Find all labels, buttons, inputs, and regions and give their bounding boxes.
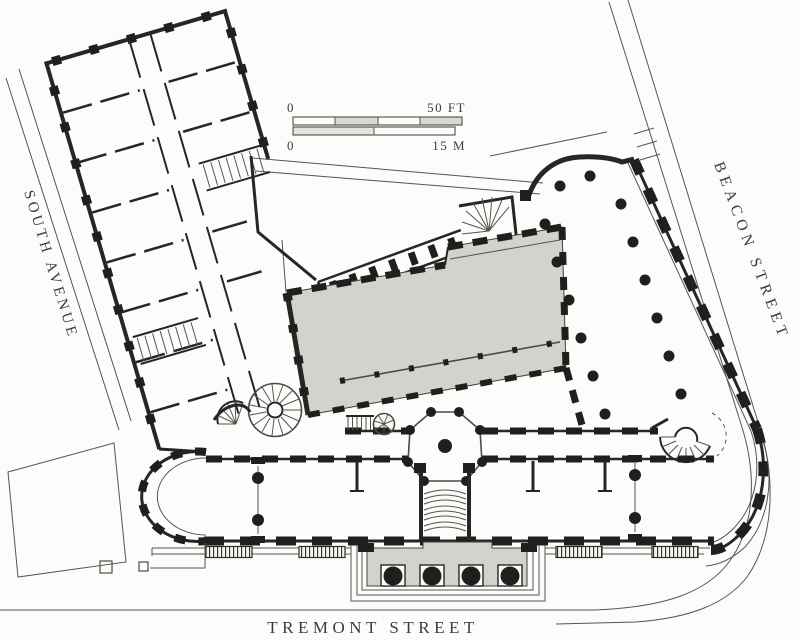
south-avenue-label: SOUTH AVENUE (20, 188, 81, 341)
rotunda-pier (403, 457, 413, 467)
grand-circular-stair (249, 384, 302, 437)
octagonal-rotunda (403, 407, 487, 486)
column-dot (552, 257, 563, 268)
stair-entry-wall (652, 419, 668, 428)
rotunda-center-column (438, 439, 452, 453)
column-dot (585, 171, 596, 182)
beacon-sidewalk-steps (634, 128, 660, 160)
wing-partitions (63, 62, 325, 413)
scale-cell (335, 117, 378, 125)
entrance-portico (351, 542, 545, 601)
scale-cell (293, 127, 374, 135)
vault-grating (652, 547, 698, 558)
column-dot (652, 313, 663, 324)
portico-column (384, 567, 403, 586)
left-wing (44, 9, 340, 450)
rotunda-pier (405, 425, 415, 435)
portico-column (501, 567, 520, 586)
stair-curved-wall (214, 405, 250, 420)
column-dot (600, 409, 611, 420)
column-dot (555, 181, 566, 192)
column-dot (252, 514, 264, 526)
vault-grating (206, 547, 252, 558)
rotunda-pier (426, 407, 436, 417)
wing-stair-lower (133, 318, 206, 364)
floor-plan-drawing: 0 50 FT 0 15 M SOUTH AVENUE BEACON STREE… (0, 0, 800, 640)
scale-cell (420, 117, 462, 125)
central-hall-shaded (287, 227, 566, 415)
column-dot (616, 199, 627, 210)
beacon-street-label: BEACON STREET (710, 159, 792, 342)
column-dot (540, 219, 551, 230)
bowed-west-end (142, 452, 206, 542)
room-columns (251, 455, 642, 543)
scale-bar: 0 50 FT 0 15 M (287, 100, 466, 153)
vacant-lot (8, 443, 126, 577)
column-dot (676, 389, 687, 400)
small-structure (139, 562, 148, 571)
portico-pier (358, 543, 374, 552)
serpentine-pier (520, 190, 531, 201)
rotunda-pier (475, 425, 485, 435)
column-dot (628, 237, 639, 248)
courtyard-right-line (490, 132, 607, 156)
courtyard-corner-line (282, 240, 286, 292)
portico-pier (521, 543, 537, 552)
bow-inner-line (157, 458, 206, 535)
scale-meters-max: 15 M (432, 138, 466, 153)
rotunda-pier (454, 407, 464, 417)
column-dot (629, 469, 641, 481)
vault-grating (299, 547, 345, 558)
tremont-street-label: TREMONT STREET (267, 618, 478, 637)
serpentine-wall (528, 157, 634, 198)
rotunda-pier (477, 457, 487, 467)
shaded-hall-area (287, 227, 566, 415)
column-dot (640, 275, 651, 286)
column-dot (664, 351, 675, 362)
vault-grating (556, 547, 602, 558)
column-dot (588, 371, 599, 382)
portico-column (423, 567, 442, 586)
wing-stair-upper (199, 145, 270, 190)
floor-plan-page: 0 50 FT 0 15 M SOUTH AVENUE BEACON STREE… (0, 0, 800, 640)
scale-meters-min: 0 (287, 138, 295, 153)
column-dot (564, 295, 575, 306)
sidewalk-corner-line (150, 543, 205, 568)
stair-dashed-swing (712, 413, 726, 456)
hall-west-wall-lower (566, 368, 584, 432)
courtyard-inner-line (256, 171, 540, 194)
tremont-wing (142, 384, 714, 544)
south-avenue-curb-line (19, 69, 131, 421)
column-dot (252, 472, 264, 484)
column-dot (576, 333, 587, 344)
small-structure (100, 561, 112, 573)
scale-feet-min: 0 (287, 100, 295, 115)
column-dot (629, 512, 641, 524)
curved-entrance-stair (414, 463, 475, 540)
courtyard-line (252, 158, 543, 183)
portico-column (462, 567, 481, 586)
scale-feet-max: 50 FT (427, 100, 466, 115)
